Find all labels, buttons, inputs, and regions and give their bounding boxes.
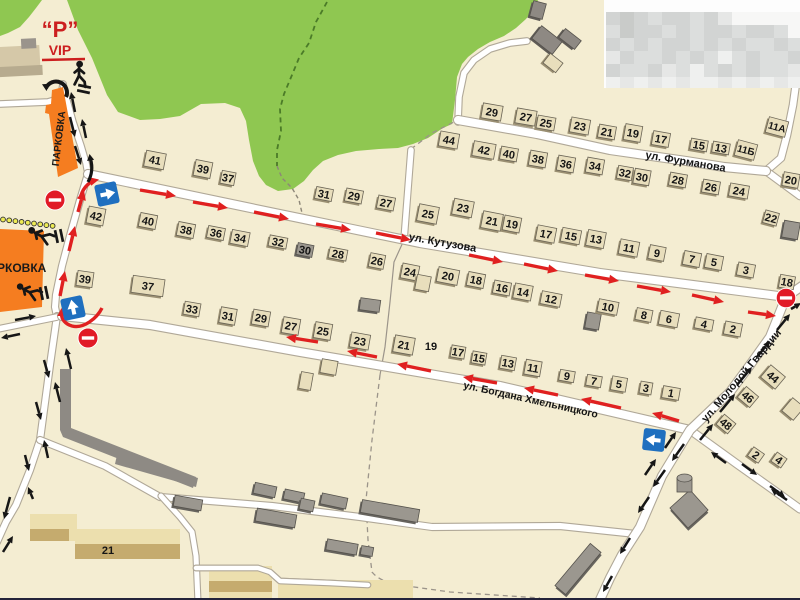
svg-text:25: 25 <box>316 325 330 339</box>
svg-text:23: 23 <box>573 120 587 134</box>
svg-text:19: 19 <box>425 341 437 353</box>
svg-text:39: 39 <box>78 273 92 287</box>
svg-text:32: 32 <box>271 236 285 250</box>
svg-text:19: 19 <box>626 127 640 141</box>
svg-text:29: 29 <box>254 312 268 326</box>
svg-text:15: 15 <box>692 139 706 153</box>
svg-text:29: 29 <box>347 190 361 204</box>
svg-text:25: 25 <box>539 117 553 131</box>
svg-text:29: 29 <box>485 106 499 120</box>
svg-text:20: 20 <box>784 174 798 188</box>
svg-text:36: 36 <box>559 158 573 172</box>
svg-text:VIP: VIP <box>49 42 72 58</box>
svg-text:11: 11 <box>526 362 540 376</box>
svg-text:17: 17 <box>539 228 553 242</box>
svg-text:21: 21 <box>102 545 114 557</box>
svg-text:23: 23 <box>456 202 470 216</box>
svg-text:18: 18 <box>469 274 483 288</box>
svg-text:40: 40 <box>141 215 155 229</box>
svg-text:11: 11 <box>622 242 636 256</box>
svg-text:25: 25 <box>421 208 435 222</box>
svg-text:26: 26 <box>370 255 384 269</box>
svg-text:21: 21 <box>397 339 411 353</box>
svg-text:15: 15 <box>564 230 578 244</box>
svg-text:37: 37 <box>141 280 155 294</box>
svg-text:37: 37 <box>221 172 235 186</box>
svg-text:27: 27 <box>379 197 393 211</box>
svg-text:“Р”: “Р” <box>42 17 79 42</box>
svg-text:38: 38 <box>531 153 545 167</box>
svg-text:39: 39 <box>196 163 210 177</box>
svg-text:30: 30 <box>298 244 312 258</box>
svg-text:30: 30 <box>635 171 649 185</box>
svg-text:10: 10 <box>601 301 615 315</box>
svg-text:32: 32 <box>618 167 632 181</box>
svg-text:28: 28 <box>331 248 345 262</box>
svg-text:19: 19 <box>505 218 519 232</box>
svg-text:13: 13 <box>589 233 603 247</box>
svg-text:31: 31 <box>317 188 331 202</box>
svg-text:38: 38 <box>179 224 193 238</box>
svg-text:26: 26 <box>704 181 718 195</box>
svg-text:17: 17 <box>451 346 465 360</box>
svg-text:17: 17 <box>654 133 668 147</box>
svg-text:36: 36 <box>209 227 223 241</box>
svg-text:13: 13 <box>501 357 515 371</box>
svg-text:12: 12 <box>544 293 558 307</box>
svg-text:13: 13 <box>714 142 728 156</box>
svg-text:41: 41 <box>148 154 162 168</box>
svg-text:42: 42 <box>89 210 103 224</box>
svg-text:27: 27 <box>284 320 298 334</box>
svg-text:31: 31 <box>221 310 235 324</box>
svg-text:15: 15 <box>472 352 486 366</box>
svg-text:33: 33 <box>185 303 199 317</box>
svg-text:ПАРКОВКА: ПАРКОВКА <box>0 261 47 275</box>
svg-text:23: 23 <box>353 335 367 349</box>
svg-text:21: 21 <box>600 126 614 140</box>
svg-text:28: 28 <box>671 174 685 188</box>
svg-text:40: 40 <box>502 148 516 162</box>
svg-text:27: 27 <box>519 111 533 125</box>
svg-text:42: 42 <box>477 144 491 158</box>
svg-text:21: 21 <box>485 215 499 229</box>
svg-text:16: 16 <box>495 282 509 296</box>
svg-text:20: 20 <box>441 270 455 284</box>
